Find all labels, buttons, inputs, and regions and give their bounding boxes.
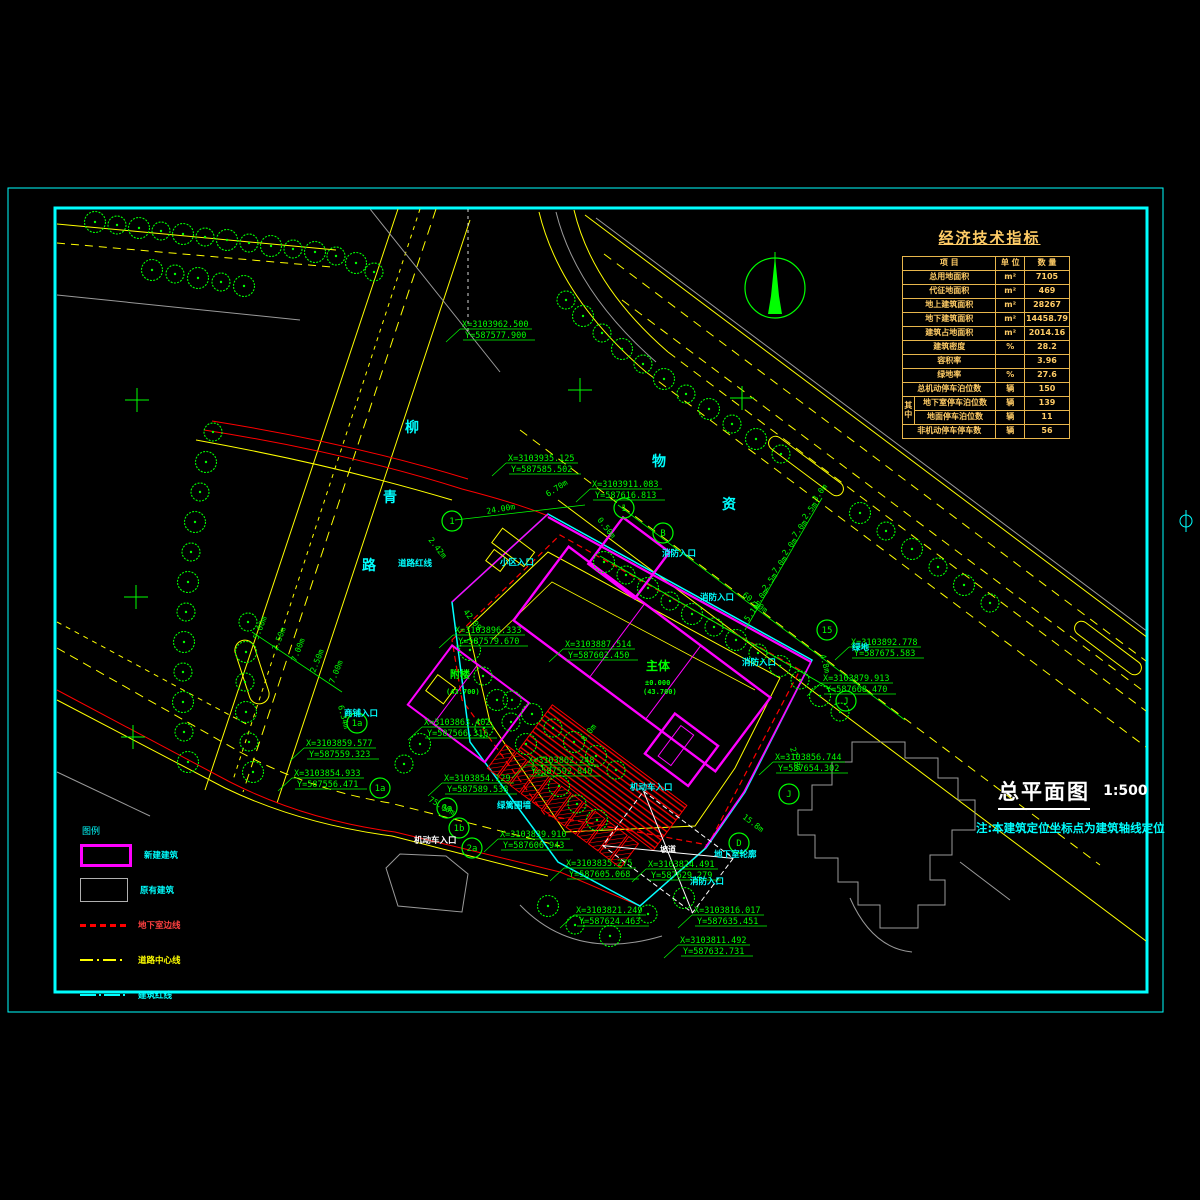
coordinate-y-label: Y=587579.670 bbox=[458, 637, 519, 647]
tree-center-dot bbox=[621, 348, 623, 350]
tree-center-dot bbox=[547, 905, 549, 907]
axis-bubble-label: 1a bbox=[375, 784, 386, 794]
coordinate-y-label: Y=587602.450 bbox=[568, 651, 629, 661]
legend-title: 图例 bbox=[82, 824, 181, 837]
legend-item-label: 道路中心线 bbox=[138, 954, 181, 966]
plan-label: 消防入口 bbox=[742, 657, 776, 668]
dimension-label: 2.50m bbox=[309, 648, 326, 674]
tree-center-dot bbox=[248, 242, 250, 244]
tree-center-dot bbox=[355, 262, 357, 264]
annex-building bbox=[408, 645, 529, 762]
econ-table-row: 地上建筑面积m²28267 bbox=[903, 299, 1070, 313]
tree-center-dot bbox=[197, 277, 199, 279]
tree-center-dot bbox=[780, 453, 782, 455]
econ-table-row: 总机动停车泊位数辆150 bbox=[903, 383, 1070, 397]
axis-bubble-label: D bbox=[736, 839, 741, 849]
plan-label: 附楼 bbox=[450, 668, 470, 681]
tree-center-dot bbox=[799, 679, 801, 681]
tree-center-dot bbox=[419, 743, 421, 745]
street-name-char: 物 bbox=[652, 453, 666, 470]
legend: 图例 新建建筑原有建筑地下室边线道路中心线建筑红线 bbox=[80, 824, 181, 1018]
dimension-label: 6.70m bbox=[544, 478, 569, 499]
econ-value-cell: 28267 bbox=[1024, 299, 1069, 313]
econ-item-cell: 容积率 bbox=[903, 355, 996, 369]
plan-label: 消防入口 bbox=[690, 876, 724, 887]
boundary-line-swatch-icon bbox=[80, 994, 126, 996]
coordinate-y-label: Y=587589.538 bbox=[447, 785, 508, 795]
tree-center-dot bbox=[683, 897, 685, 899]
econ-value-cell: 56 bbox=[1024, 425, 1069, 439]
tree-center-dot bbox=[615, 769, 617, 771]
tree-center-dot bbox=[199, 491, 201, 493]
survey-cross-icon bbox=[121, 725, 145, 749]
coordinate-x-label: X=3103863.402 bbox=[424, 718, 491, 728]
legend-item-label: 原有建筑 bbox=[140, 884, 174, 896]
coordinate-callouts-layer: X=3103962.500Y=587577.900X=3103935.125Y=… bbox=[278, 320, 924, 958]
coordinate-y-label: Y=587592.840 bbox=[531, 767, 592, 777]
plan-label: 绿地 bbox=[852, 642, 870, 653]
coordinate-x-label: X=3103862.248 bbox=[528, 756, 595, 766]
econ-value-cell: 28.2 bbox=[1024, 341, 1069, 355]
plan-label: 小区入口 bbox=[499, 557, 534, 568]
econ-value-cell: 469 bbox=[1024, 285, 1069, 299]
tree-center-dot bbox=[252, 771, 254, 773]
econ-table-row: 容积率3.96 bbox=[903, 355, 1070, 369]
plan-label: 机动车入口 bbox=[414, 835, 457, 846]
tree-center-dot bbox=[839, 711, 841, 713]
econ-header-cell: 项 目 bbox=[903, 257, 996, 271]
callout-leader bbox=[759, 762, 773, 775]
coordinate-y-label: Y=587668.470 bbox=[826, 685, 887, 695]
econ-item-cell: 地下室停车泊位数 bbox=[914, 397, 996, 411]
tree-center-dot bbox=[469, 649, 471, 651]
econ-unit-cell: % bbox=[996, 341, 1024, 355]
coordinate-x-label: X=3103879.913 bbox=[823, 674, 890, 684]
econ-item-cell: 非机动停车停车数 bbox=[903, 425, 996, 439]
coordinate-x-label: X=3103811.492 bbox=[680, 936, 747, 946]
econ-value-cell: 2014.16 bbox=[1024, 327, 1069, 341]
econ-header-cell: 数 量 bbox=[1024, 257, 1069, 271]
econ-item-cell: 地下建筑面积 bbox=[903, 313, 996, 327]
survey-cross-icon bbox=[124, 585, 148, 609]
econ-table-row: 非机动停车停车数辆56 bbox=[903, 425, 1070, 439]
tree-center-dot bbox=[819, 695, 821, 697]
coordinate-y-label: Y=587556.471 bbox=[297, 780, 358, 790]
tree-center-dot bbox=[151, 269, 153, 271]
drawing-note: 注:本建筑定位坐标点为建筑轴线定位 bbox=[976, 820, 1165, 836]
coordinate-x-label: X=3103911.083 bbox=[592, 480, 659, 490]
tree-center-dot bbox=[663, 378, 665, 380]
dimension-label: 3.0m bbox=[810, 482, 829, 503]
plan-label: 消防入口 bbox=[662, 548, 696, 559]
callout-leader bbox=[835, 647, 849, 660]
econ-value-cell: 14458.79 bbox=[1024, 313, 1069, 327]
econ-value-cell: 7105 bbox=[1024, 271, 1069, 285]
econ-item-cell: 地面停车泊位数 bbox=[914, 411, 996, 425]
plan-label: 机动车入口 bbox=[630, 782, 673, 793]
econ-unit-cell: 辆 bbox=[996, 383, 1024, 397]
tree-center-dot bbox=[647, 913, 649, 915]
tree-center-dot bbox=[779, 665, 781, 667]
dimension-label: 5.00m bbox=[252, 615, 269, 641]
tree-center-dot bbox=[625, 574, 627, 576]
coordinate-x-label: X=3103824.491 bbox=[648, 860, 715, 870]
road-centerline-swatch-icon bbox=[80, 959, 126, 961]
tree-center-dot bbox=[204, 236, 206, 238]
tree-center-dot bbox=[183, 731, 185, 733]
econ-item-cell: 建筑密度 bbox=[903, 341, 996, 355]
legend-item: 地下室边线 bbox=[80, 913, 181, 937]
coordinate-x-label: X=3103839.910 bbox=[500, 830, 567, 840]
tree-center-dot bbox=[187, 761, 189, 763]
coordinate-x-label: X=3103962.500 bbox=[462, 320, 529, 330]
econ-unit-cell: % bbox=[996, 369, 1024, 383]
callout-leader bbox=[632, 869, 646, 882]
plan-label: 地下室轮廓 bbox=[714, 849, 757, 860]
tree-center-dot bbox=[609, 935, 611, 937]
coordinate-y-label: Y=587559.323 bbox=[309, 750, 370, 760]
tree-center-dot bbox=[713, 626, 715, 628]
econ-table: 项 目单 位数 量总用地面积m²7105代征地面积m²469地上建筑面积m²28… bbox=[902, 256, 1070, 439]
tree-center-dot bbox=[937, 566, 939, 568]
coordinate-x-label: X=3103856.744 bbox=[775, 753, 842, 763]
tree-center-dot bbox=[226, 239, 228, 241]
street-name-char: 资 bbox=[722, 496, 736, 513]
coordinate-x-label: X=3103935.125 bbox=[508, 454, 575, 464]
plan-label: (43.700) bbox=[446, 688, 480, 696]
econ-value-cell: 11 bbox=[1024, 411, 1069, 425]
econ-table-row: 建筑占地面积m²2014.16 bbox=[903, 327, 1070, 341]
callout-leader bbox=[807, 683, 821, 696]
legend-item-label: 建筑红线 bbox=[138, 989, 172, 1001]
tree-center-dot bbox=[245, 651, 247, 653]
axis-bubble-label: J bbox=[843, 697, 848, 707]
econ-unit-cell bbox=[996, 355, 1024, 369]
callout-leader bbox=[678, 915, 692, 928]
econ-item-cell: 绿地率 bbox=[903, 369, 996, 383]
tree-center-dot bbox=[243, 285, 245, 287]
site-plan-canvas: X=3103962.500Y=587577.900X=3103935.125Y=… bbox=[0, 0, 1200, 1200]
tree-center-dot bbox=[212, 431, 214, 433]
tree-center-dot bbox=[576, 803, 578, 805]
tree-center-dot bbox=[574, 924, 576, 926]
plan-label: 主体 bbox=[646, 658, 671, 673]
econ-item-cell: 代征地面积 bbox=[903, 285, 996, 299]
legend-item: 建筑红线 bbox=[80, 983, 181, 1007]
dimension-label: 2.42m bbox=[426, 536, 448, 561]
econ-group-cell: 其 中 bbox=[903, 397, 915, 425]
tree-center-dot bbox=[708, 408, 710, 410]
tree-center-dot bbox=[642, 363, 644, 365]
tree-center-dot bbox=[183, 641, 185, 643]
econ-table-body: 项 目单 位数 量总用地面积m²7105代征地面积m²469地上建筑面积m²28… bbox=[903, 257, 1070, 439]
econ-table-row: 地下建筑面积m²14458.79 bbox=[903, 313, 1070, 327]
tree-center-dot bbox=[685, 393, 687, 395]
econ-item-cell: 地上建筑面积 bbox=[903, 299, 996, 313]
legend-item-label: 地下室边线 bbox=[138, 919, 181, 931]
callout-leader bbox=[408, 727, 422, 740]
tree-center-dot bbox=[244, 681, 246, 683]
tree-center-dot bbox=[292, 248, 294, 250]
tree-center-dot bbox=[595, 755, 597, 757]
econ-unit-cell: m² bbox=[996, 285, 1024, 299]
street-name-char: 路 bbox=[362, 557, 377, 574]
tree-center-dot bbox=[596, 819, 598, 821]
tree-center-dot bbox=[757, 652, 759, 654]
callout-leader bbox=[484, 839, 498, 852]
tree-center-dot bbox=[496, 699, 498, 701]
tree-center-dot bbox=[691, 613, 693, 615]
econ-unit-cell: m² bbox=[996, 299, 1024, 313]
north-arrow-icon bbox=[745, 252, 805, 318]
tree-center-dot bbox=[558, 785, 560, 787]
coordinate-x-label: X=3103816.017 bbox=[694, 906, 761, 916]
tree-center-dot bbox=[525, 743, 527, 745]
callout-leader bbox=[560, 915, 574, 928]
econ-value-cell: 150 bbox=[1024, 383, 1069, 397]
drawing-title: 总平面图 bbox=[998, 776, 1090, 810]
dimension-label: 7.00m bbox=[290, 637, 307, 663]
coordinate-x-label: X=3103896.333 bbox=[455, 626, 522, 636]
legend-item: 新建建筑 bbox=[80, 843, 181, 867]
callout-leader bbox=[664, 945, 678, 958]
tree-center-dot bbox=[190, 551, 192, 553]
dimension-label: 2.50m bbox=[271, 626, 288, 652]
econ-unit-cell: 辆 bbox=[996, 425, 1024, 439]
econ-value-cell: 3.96 bbox=[1024, 355, 1069, 369]
axis-bubble-label: B bbox=[660, 529, 665, 539]
econ-table-title: 经济技术指标 bbox=[902, 227, 1077, 248]
plan-label: 绿篱围墙 bbox=[497, 800, 532, 811]
plan-label: 商铺入口 bbox=[344, 708, 378, 719]
coordinate-y-label: Y=587635.451 bbox=[697, 917, 758, 927]
existing-building-swatch-icon bbox=[80, 878, 128, 902]
coordinate-x-label: X=3103854.933 bbox=[294, 769, 361, 779]
econ-unit-cell: 辆 bbox=[996, 411, 1024, 425]
site-features bbox=[481, 528, 535, 581]
tree-center-dot bbox=[510, 721, 512, 723]
coordinate-x-label: X=3103859.577 bbox=[306, 739, 373, 749]
econ-header-cell: 单 位 bbox=[996, 257, 1024, 271]
coordinate-y-label: Y=587605.068 bbox=[569, 870, 630, 880]
axis-bubble-label: 1a bbox=[352, 719, 363, 729]
coordinate-y-label: Y=587616.813 bbox=[595, 491, 656, 501]
coordinate-y-label: Y=587654.302 bbox=[778, 764, 839, 774]
plan-label: ±0.000 bbox=[645, 679, 670, 687]
drawing-title-block: 总平面图 1:500 bbox=[998, 776, 1148, 810]
dimension-label: 7.00m bbox=[328, 659, 345, 685]
tree-center-dot bbox=[248, 741, 250, 743]
tree-center-dot bbox=[187, 581, 189, 583]
existing-buildings bbox=[386, 742, 1010, 928]
callout-leader bbox=[290, 748, 304, 761]
tree-center-dot bbox=[731, 423, 733, 425]
tree-center-dot bbox=[373, 271, 375, 273]
legend-items: 新建建筑原有建筑地下室边线道路中心线建筑红线 bbox=[80, 843, 181, 1007]
drawing-scale: 1:500 bbox=[1103, 783, 1148, 799]
tree-center-dot bbox=[403, 763, 405, 765]
tree-center-dot bbox=[531, 713, 533, 715]
axis-bubble-label: 1b bbox=[454, 824, 465, 834]
tree-center-dot bbox=[669, 600, 671, 602]
tree-center-dot bbox=[182, 671, 184, 673]
tree-center-dot bbox=[247, 621, 249, 623]
coordinate-x-label: X=3103887.514 bbox=[565, 640, 632, 650]
tree-center-dot bbox=[582, 315, 584, 317]
plan-label: 道路红线 bbox=[398, 558, 433, 569]
underground-line-swatch-icon bbox=[80, 924, 126, 927]
tree-center-dot bbox=[138, 227, 140, 229]
tree-center-dot bbox=[601, 332, 603, 334]
axis-bubble-label: 2a bbox=[467, 844, 478, 854]
econ-value-cell: 139 bbox=[1024, 397, 1069, 411]
econ-item-cell: 总机动停车泊位数 bbox=[903, 383, 996, 397]
econ-table-row: 建筑密度%28.2 bbox=[903, 341, 1070, 355]
callout-leader bbox=[576, 489, 590, 502]
legend-item: 道路中心线 bbox=[80, 948, 181, 972]
tree-center-dot bbox=[647, 587, 649, 589]
econ-table-row: 绿地率%27.6 bbox=[903, 369, 1070, 383]
legend-item: 原有建筑 bbox=[80, 878, 181, 902]
coordinate-y-label: Y=587577.900 bbox=[465, 331, 526, 341]
callout-leader bbox=[428, 783, 442, 796]
coordinate-y-label: Y=587632.731 bbox=[683, 947, 744, 957]
tree-center-dot bbox=[755, 438, 757, 440]
tree-center-dot bbox=[160, 230, 162, 232]
tree-center-dot bbox=[859, 512, 861, 514]
econ-table-row: 代征地面积m²469 bbox=[903, 285, 1070, 299]
tree-center-dot bbox=[205, 461, 207, 463]
new-building-swatch-icon bbox=[80, 844, 132, 867]
axis-bubble-label: 15 bbox=[822, 626, 833, 636]
callout-leader bbox=[446, 329, 460, 342]
tree-center-dot bbox=[94, 221, 96, 223]
dimension-label: 4.8m bbox=[818, 653, 832, 674]
tree-center-dot bbox=[220, 281, 222, 283]
tree-center-dot bbox=[911, 548, 913, 550]
coordinate-y-label: Y=587566.316 bbox=[427, 729, 488, 739]
tree-center-dot bbox=[963, 584, 965, 586]
dimension-label: 15.8m bbox=[741, 812, 766, 834]
tree-center-dot bbox=[885, 530, 887, 532]
tree-center-dot bbox=[116, 224, 118, 226]
tree-center-dot bbox=[603, 561, 605, 563]
tree-center-dot bbox=[335, 255, 337, 257]
econ-value-cell: 27.6 bbox=[1024, 369, 1069, 383]
tree-center-dot bbox=[185, 611, 187, 613]
econ-item-cell: 总用地面积 bbox=[903, 271, 996, 285]
tree-center-dot bbox=[174, 273, 176, 275]
economic-indicator-table: 经济技术指标 项 目单 位数 量总用地面积m²7105代征地面积m²469地上建… bbox=[902, 227, 1077, 439]
legend-item-label: 新建建筑 bbox=[144, 849, 178, 861]
tree-center-dot bbox=[482, 675, 484, 677]
tree-center-dot bbox=[314, 251, 316, 253]
econ-unit-cell: m² bbox=[996, 271, 1024, 285]
axis-bubble-label: 1 bbox=[449, 517, 454, 527]
sheet-edge-marker bbox=[1180, 510, 1192, 532]
plan-label: (43.700) bbox=[643, 688, 677, 696]
tree-center-dot bbox=[182, 233, 184, 235]
coordinate-y-label: Y=587606.943 bbox=[503, 841, 564, 851]
econ-unit-cell: m² bbox=[996, 313, 1024, 327]
econ-table-row: 地面停车泊位数辆11 bbox=[903, 411, 1070, 425]
plan-label: 消防入口 bbox=[700, 592, 734, 603]
coordinate-x-label: X=3103835.275 bbox=[566, 859, 633, 869]
coordinate-x-label: X=3103854.129 bbox=[444, 774, 511, 784]
tree-center-dot bbox=[989, 602, 991, 604]
coordinate-y-label: Y=587624.463 bbox=[579, 917, 640, 927]
econ-table-row: 总用地面积m²7105 bbox=[903, 271, 1070, 285]
street-name-char: 青 bbox=[383, 489, 397, 506]
tree-center-dot bbox=[194, 521, 196, 523]
econ-unit-cell: 辆 bbox=[996, 397, 1024, 411]
survey-cross-icon bbox=[568, 378, 592, 402]
axis-bubble-label: J bbox=[786, 790, 791, 800]
econ-table-row: 其 中地下室停车泊位数辆139 bbox=[903, 397, 1070, 411]
tree-center-dot bbox=[573, 741, 575, 743]
plan-label: 坡道 bbox=[660, 844, 676, 854]
callout-leader bbox=[492, 463, 506, 476]
cad-sheet: X=3103962.500Y=587577.900X=3103935.125Y=… bbox=[0, 0, 1200, 1200]
tree-center-dot bbox=[270, 245, 272, 247]
tree-center-dot bbox=[565, 299, 567, 301]
survey-cross-icon bbox=[730, 386, 754, 410]
street-name-char: 柳 bbox=[405, 419, 419, 436]
tree-center-dot bbox=[182, 701, 184, 703]
axis-bubble-label: 3a bbox=[442, 804, 453, 814]
survey-cross-icon bbox=[125, 388, 149, 412]
tree-center-dot bbox=[735, 639, 737, 641]
tree-center-dot bbox=[552, 727, 554, 729]
coordinate-x-label: X=3103821.249 bbox=[576, 906, 643, 916]
axis-bubble-label: 1 bbox=[621, 504, 626, 514]
tree-center-dot bbox=[511, 699, 513, 701]
tree-center-dot bbox=[245, 711, 247, 713]
coordinate-y-label: Y=587585.502 bbox=[511, 465, 572, 475]
econ-item-cell: 建筑占地面积 bbox=[903, 327, 996, 341]
econ-unit-cell: m² bbox=[996, 327, 1024, 341]
